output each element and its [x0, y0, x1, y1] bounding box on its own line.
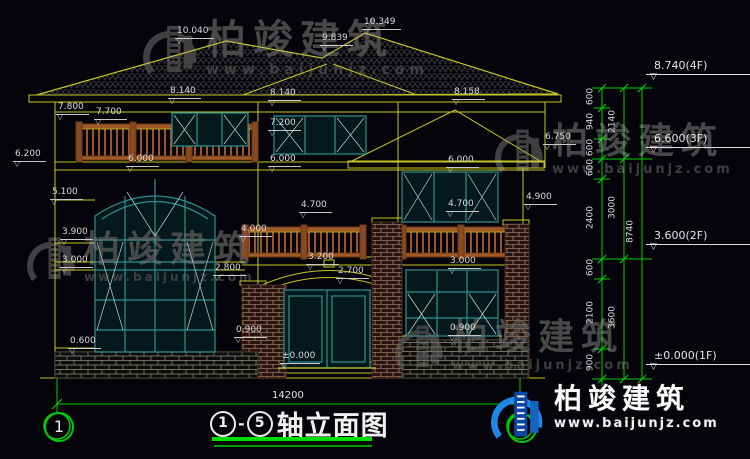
axis-bubble-1: 1 [44, 412, 74, 442]
title-axis-circle-end: 5 [247, 411, 273, 437]
brand-building-icon [490, 385, 546, 451]
chain-segment-label: 2100 [587, 291, 596, 335]
drawing-title-block: 1 - 5 轴立面图 [210, 404, 389, 443]
dim-label: 7.800▽ [56, 103, 89, 115]
chain-segment-label: 3000 [609, 186, 618, 230]
level-marker: 8.740(4F)▽ [646, 60, 750, 75]
level-marker: 3.600(2F)▽ [646, 230, 750, 245]
dim-label: 3.000▽ [60, 256, 93, 268]
logo-brand-url: www.baijunjz.com [554, 417, 719, 430]
brand-logo: 柏竣建筑 www.baijunjz.com [490, 385, 719, 451]
title-axis-circle-start: 1 [210, 411, 236, 437]
dim-label: 0.900▽ [234, 326, 267, 338]
chain-segment-label: 600 [587, 246, 596, 290]
dim-label: 4.700▽ [446, 200, 479, 212]
dim-label: 2.800▽ [213, 264, 246, 276]
logo-brand-name: 柏竣建筑 [554, 385, 719, 413]
dim-label: 8.140▽ [168, 87, 201, 99]
dim-label: ±0.000▽ [280, 352, 320, 364]
dim-label: 0.600▽ [68, 337, 101, 349]
dim-label: 2.700▽ [336, 267, 369, 279]
dim-label: 4.700▽ [299, 201, 332, 213]
dim-label: 7.200▽ [268, 119, 301, 131]
cad-elevation-canvas: 柏竣建筑 www.baijunjz.com 柏竣建筑 www.baijunjz.… [0, 0, 750, 459]
dim-label: 8.158▽ [452, 88, 485, 100]
chain-segment-label: 2400 [587, 196, 596, 240]
level-marker: ±0.000(1F)▽ [646, 350, 750, 365]
dim-label: 3.900▽ [60, 228, 93, 240]
dim-label: 10.040▽ [175, 27, 214, 39]
dim-label: 5.100▽ [50, 188, 83, 200]
dim-label: 7.700▽ [94, 108, 127, 120]
chain-segment-label: 900 [587, 341, 596, 385]
dim-label: 6.000▽ [268, 155, 301, 167]
title-underline-2 [214, 445, 372, 447]
dim-label: 10.349▽ [362, 18, 401, 30]
chain-segment-label: 3600 [609, 296, 618, 340]
dim-label: 6.000▽ [446, 156, 479, 168]
dim-label: 0.900▽ [448, 324, 481, 336]
level-marker: 6.600(3F)▽ [646, 133, 750, 148]
chain-segment-label: 600 [587, 146, 596, 190]
dim-label: 6.000▽ [126, 155, 159, 167]
dim-label: 6.750▽ [543, 133, 576, 145]
title-underline [212, 437, 372, 441]
title-dash: - [238, 414, 245, 433]
dim-label: 3.200▽ [306, 253, 339, 265]
chain-segment-label: 8740 [627, 210, 636, 254]
overall-dimension-label: 14200 [272, 390, 304, 401]
dim-label: 4.900▽ [524, 193, 557, 205]
chain-segment-label: 2140 [609, 100, 618, 144]
dim-label: 4.000▽ [239, 225, 272, 237]
dim-label: 8.140▽ [268, 89, 301, 101]
dim-label: 9.839▽ [320, 34, 353, 46]
dim-label: 3.000▽ [448, 257, 481, 269]
dim-label: 6.200▽ [13, 150, 46, 162]
